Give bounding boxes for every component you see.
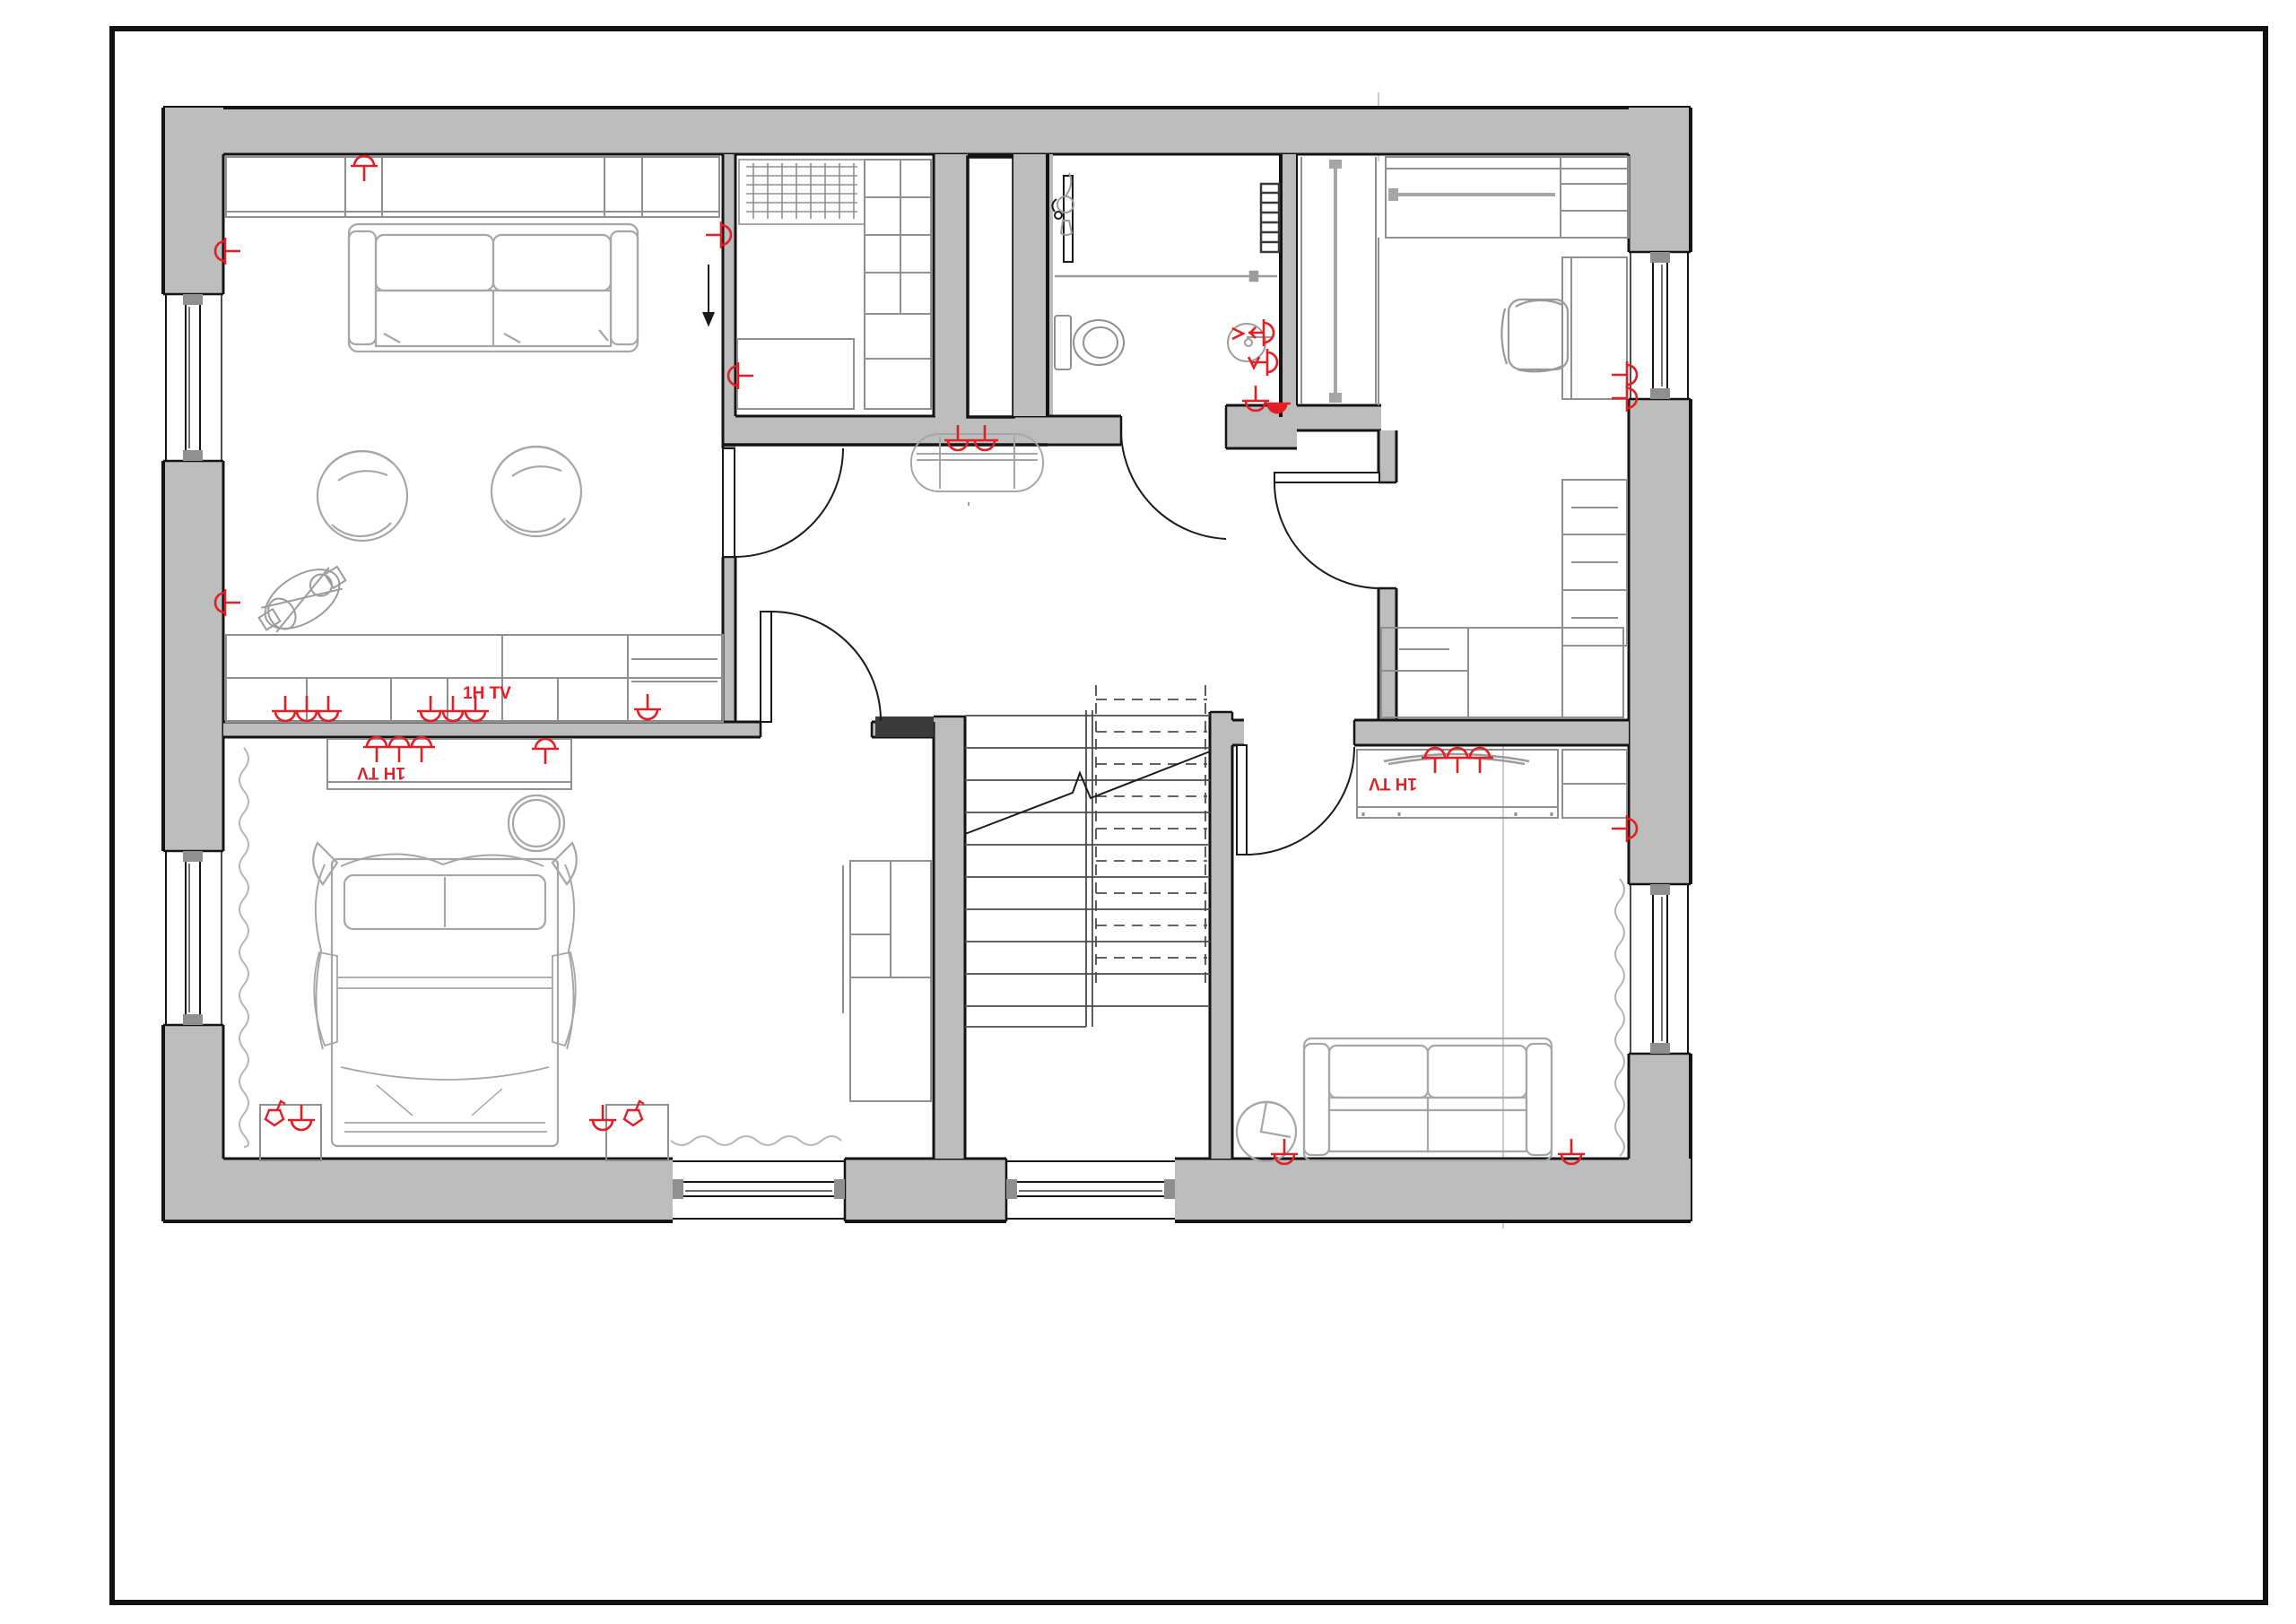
svg-text:1H TV: 1H TV <box>1369 774 1417 793</box>
svg-text:1H TV: 1H TV <box>463 684 511 703</box>
svg-text:1H TV: 1H TV <box>357 763 405 782</box>
